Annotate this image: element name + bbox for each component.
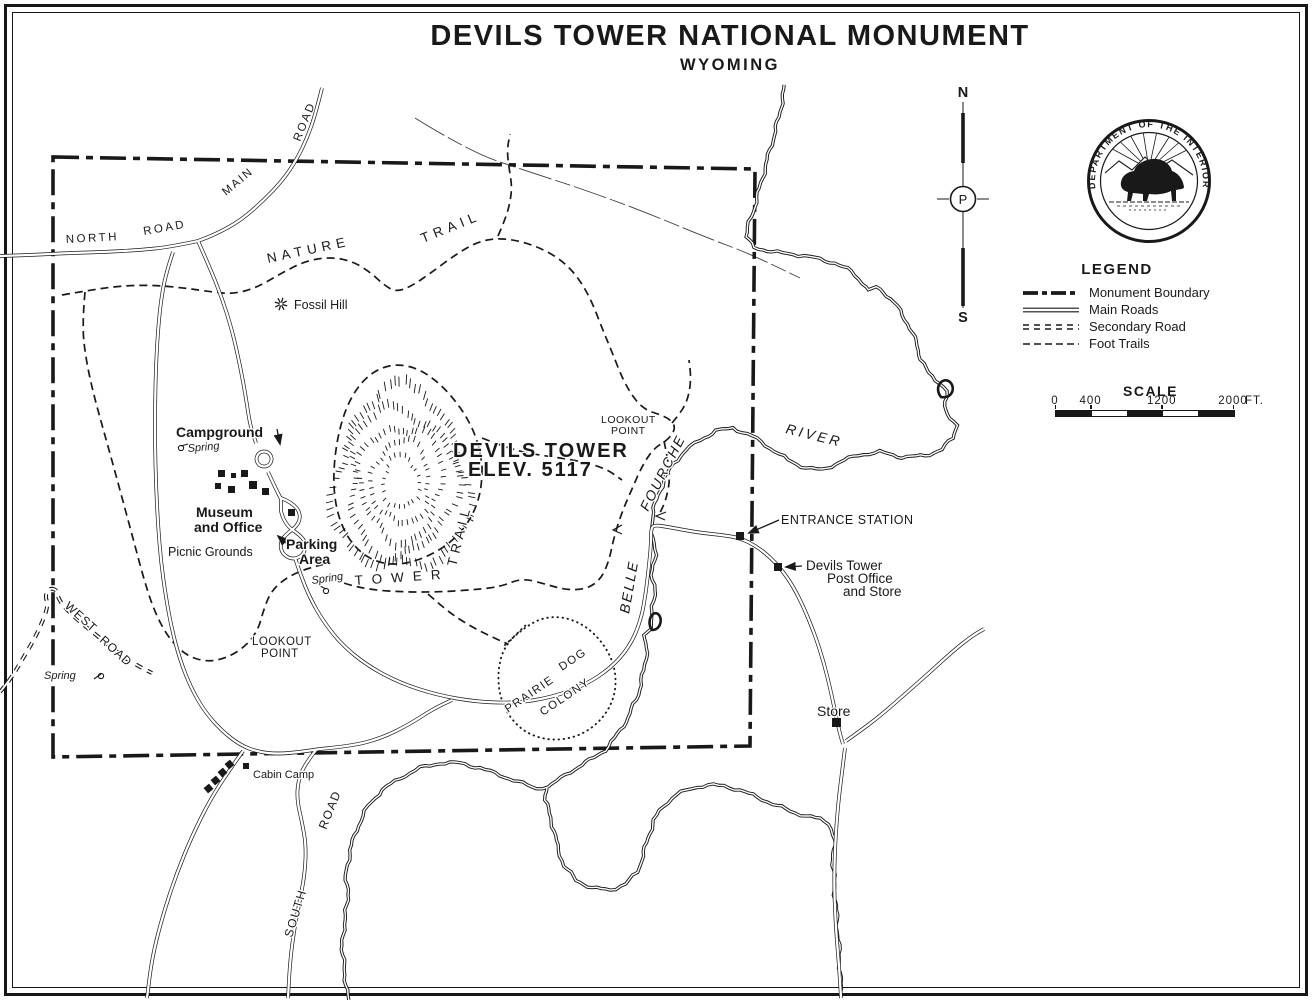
spring-symbol [94, 673, 104, 679]
map-label-spring: Spring [187, 440, 221, 455]
legend-item-label: Main Roads [1089, 302, 1158, 317]
museum-marker [288, 509, 295, 516]
map-label-south: SOUTH [281, 887, 309, 938]
map-subtitle: WYOMING [400, 56, 1060, 75]
map-label-and-office: and Office [194, 519, 263, 535]
map-label-fourche: FOURCHE [636, 432, 688, 513]
cabin-camp-building [204, 784, 214, 794]
map-label-store: Store [817, 703, 851, 719]
map-label-river: RIVER [784, 420, 844, 450]
pointer-arrow [786, 566, 802, 567]
campground-building [262, 488, 269, 495]
post-office-marker [774, 563, 782, 571]
scale-bar-segments [1055, 410, 1235, 417]
map-label-campground: Campground [176, 424, 263, 440]
entrance-station-marker [736, 532, 744, 540]
campground-building [249, 481, 257, 489]
fence-line [415, 118, 800, 278]
map-label-trail: TRAIL [419, 208, 483, 246]
map-label-tower: TOWER [354, 566, 450, 588]
store-marker [832, 718, 841, 727]
map-label-fossil-hill: Fossil Hill [294, 298, 347, 312]
map-label-lookout: LOOKOUT [252, 636, 312, 648]
map-label-elev-5117: ELEV. 5117 [468, 459, 593, 481]
secondary-road-symbol [1022, 322, 1080, 332]
map-label-trail: TRAIL [444, 503, 474, 568]
pointer-arrow [277, 429, 280, 444]
map-title: DEVILS TOWER NATIONAL MONUMENT [400, 20, 1060, 53]
legend: LEGEND Monument Boundary Main Roads Seco… [1022, 261, 1252, 352]
map-label-picnic-grounds: Picnic Grounds [168, 545, 253, 559]
campground-building [241, 470, 248, 477]
map-label-road: ROAD [142, 219, 187, 238]
legend-item-label: Secondary Road [1089, 319, 1186, 334]
map-label-road: ROAD [316, 788, 344, 831]
legend-item-label: Foot Trails [1089, 336, 1150, 351]
interior-department-seal: DEPARTMENT OF THE INTERIOR [1087, 119, 1211, 241]
compass-center-letter: P [959, 192, 968, 207]
map-page: NORTHROADMAINROADNATURETRAILFossil HillC… [0, 0, 1312, 1000]
campground-building [218, 470, 225, 477]
compass: P N S [937, 85, 989, 326]
map-title-block: DEVILS TOWER NATIONAL MONUMENT WYOMING [400, 20, 1060, 75]
scale-unit-label: FT. [1245, 395, 1264, 407]
foot-trails-symbol [1022, 339, 1080, 349]
compass-north-label: N [958, 85, 968, 101]
map-canvas: NORTHROADMAINROADNATURETRAILFossil HillC… [0, 0, 1312, 1000]
map-label-museum: Museum [196, 504, 253, 520]
map-label-and-store: and Store [843, 584, 902, 599]
campground-building [231, 473, 236, 478]
map-label-point: POINT [611, 425, 646, 437]
map-label-entrance-station: ENTRANCE STATION [781, 513, 914, 527]
compass-south-label: S [958, 310, 968, 326]
map-label-parking: Parking [286, 536, 337, 552]
map-label-road: ROAD [97, 633, 135, 669]
map-label-west: WEST [62, 599, 100, 635]
map-label-dog: DOG [557, 646, 589, 673]
map-label-cabin-camp: Cabin Camp [253, 769, 314, 781]
map-label-spring: Spring [44, 670, 77, 682]
monument-boundary-symbol [1022, 288, 1080, 298]
spring-symbol [320, 586, 329, 594]
cabin-camp-marker [243, 763, 249, 769]
map-label-spring: Spring [311, 571, 345, 587]
map-label-area: Area [299, 551, 330, 567]
map-label-north: NORTH [66, 231, 120, 246]
main-roads-symbol [1022, 305, 1080, 315]
map-label-main: MAIN [220, 165, 256, 198]
map-labels: NORTHROADMAINROADNATURETRAILFossil HillC… [44, 100, 914, 938]
fossil-hill-symbol [275, 298, 287, 310]
campground-building [228, 486, 235, 493]
campground-building [215, 483, 221, 489]
map-label-belle: BELLE [616, 559, 641, 615]
map-label-point: POINT [261, 648, 299, 660]
legend-heading: LEGEND [1022, 261, 1212, 278]
legend-item-label: Monument Boundary [1089, 285, 1210, 300]
